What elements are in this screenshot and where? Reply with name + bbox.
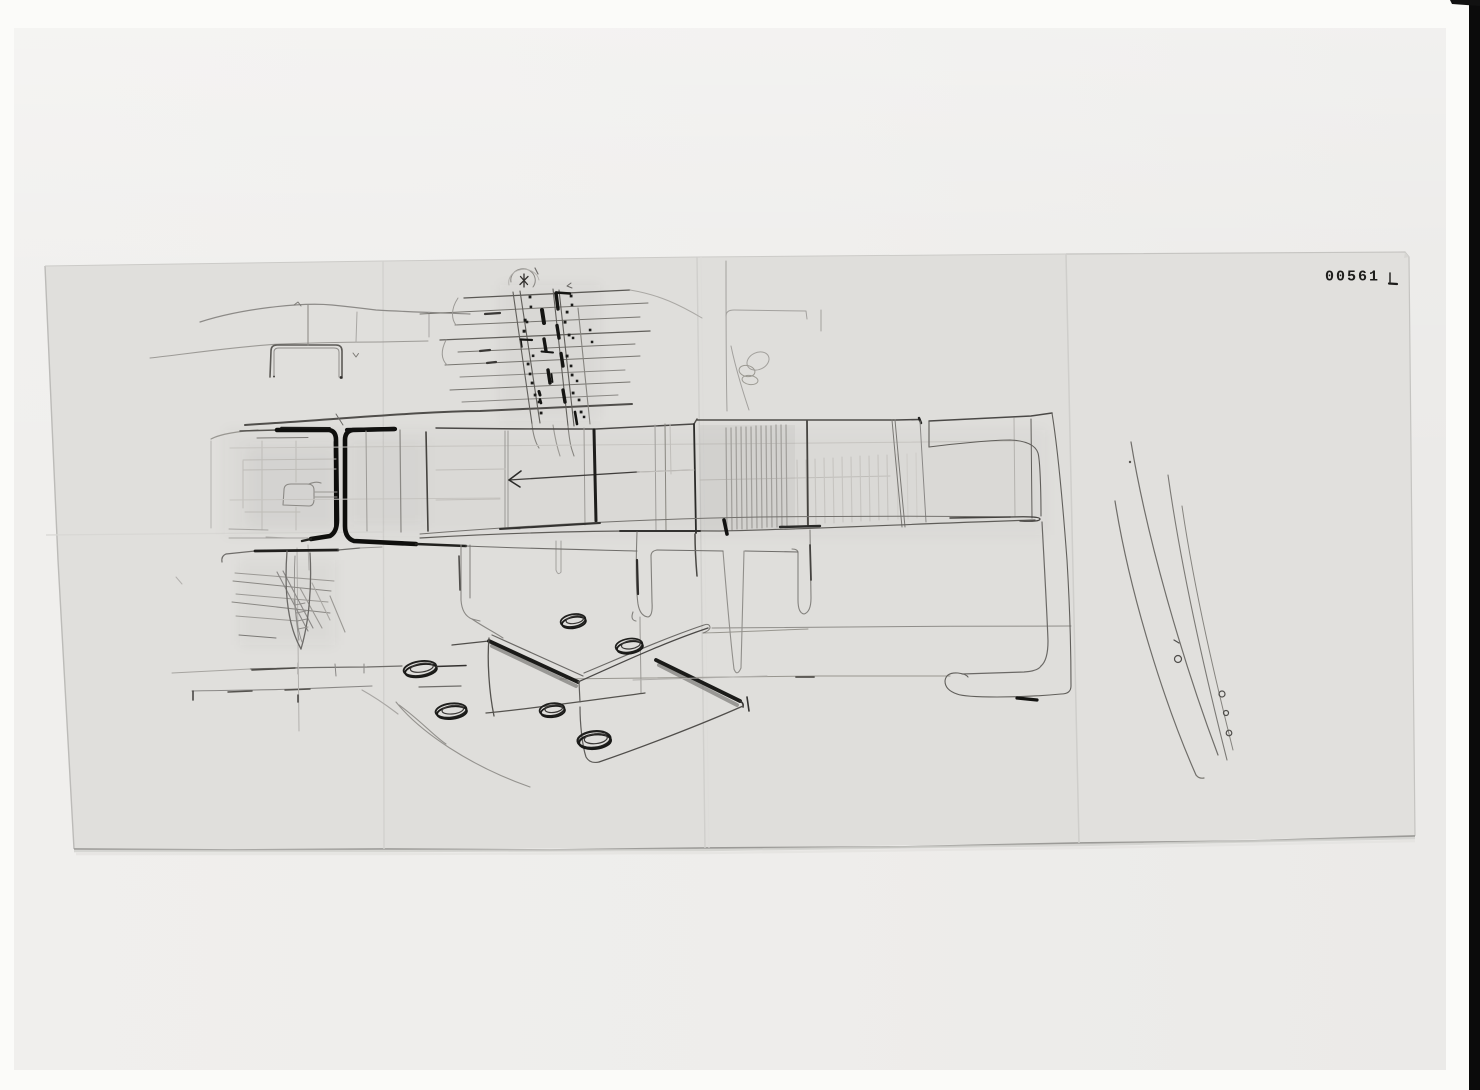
- svg-text:00561: 00561: [1325, 269, 1380, 286]
